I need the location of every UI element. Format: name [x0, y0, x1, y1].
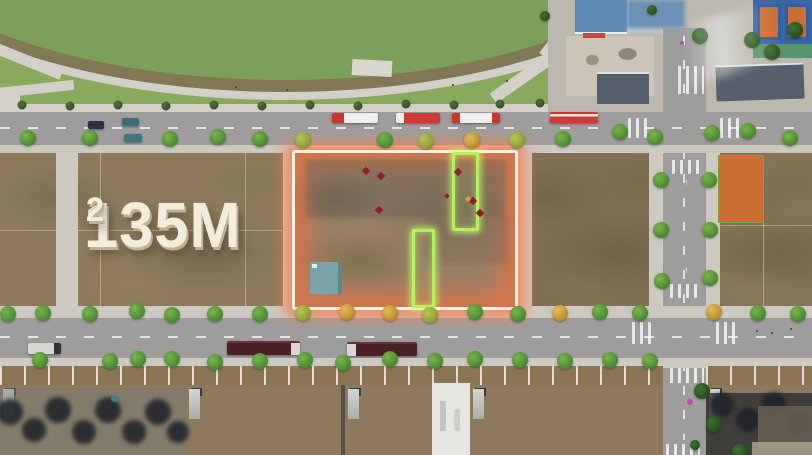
white-corner-building — [432, 383, 470, 455]
tree-icon — [592, 304, 608, 320]
tree-icon — [647, 5, 657, 15]
tree-icon — [297, 352, 313, 368]
shrub-icon — [66, 102, 75, 111]
road-arrow: ↑ — [684, 178, 689, 187]
map-pin-icon — [680, 41, 684, 45]
slate-roof-building — [597, 72, 649, 104]
tree-icon — [512, 352, 528, 368]
tree-icon — [252, 131, 268, 147]
truck — [28, 343, 61, 354]
tree-icon — [252, 306, 268, 322]
tree-icon — [744, 32, 760, 48]
aerial-photo: ↑ ↑ 135M2 — [0, 0, 812, 455]
tree-icon — [382, 305, 398, 321]
clay-lot — [718, 155, 764, 223]
pedestrian-dot — [756, 330, 758, 332]
crosswalk — [678, 66, 704, 94]
tree-icon — [422, 307, 438, 323]
lane-marking — [0, 127, 812, 129]
crosswalk — [670, 368, 704, 383]
tree-icon — [540, 11, 550, 21]
area-label: 135M2 — [84, 188, 105, 262]
tree-icon — [732, 444, 748, 455]
tree-icon — [0, 306, 16, 322]
shrub-icon — [536, 99, 545, 108]
tree-icon — [129, 303, 145, 319]
bus — [332, 113, 378, 123]
tree-icon — [335, 355, 351, 371]
shrub-icon — [402, 100, 411, 109]
tree-icon — [557, 353, 573, 369]
tree-icon — [647, 129, 663, 145]
shrub-icon — [306, 101, 315, 110]
tree-icon — [207, 306, 223, 322]
blue-roof-shed — [310, 262, 342, 294]
tree-icon — [252, 353, 268, 369]
tree-icon — [702, 270, 718, 286]
debris-marker — [583, 33, 605, 38]
blue-roof-building — [627, 0, 685, 31]
tree-icon — [295, 305, 311, 321]
tree-icon — [602, 352, 618, 368]
tree-icon — [467, 304, 483, 320]
highlight-subplot — [412, 229, 435, 308]
park — [0, 0, 548, 112]
crosswalk — [672, 160, 704, 174]
tree-icon — [210, 129, 226, 145]
shrub-icon — [210, 101, 219, 110]
tree-icon — [418, 133, 434, 149]
tree-icon — [162, 131, 178, 147]
tree-icon — [20, 130, 36, 146]
pedestrian-dot — [235, 86, 237, 88]
townhouse-block — [470, 385, 663, 455]
park-sidewalk — [0, 104, 548, 112]
tree-icon — [427, 353, 443, 369]
front-gardens — [706, 366, 812, 385]
slate-roof-building — [715, 62, 804, 101]
crosswalk — [720, 118, 740, 138]
area-exponent: 2 — [86, 191, 105, 229]
sidewalk — [516, 145, 532, 318]
tree-icon — [35, 305, 51, 321]
facade-detail — [454, 409, 460, 431]
tree-icon — [552, 305, 568, 321]
tree-icon — [706, 416, 722, 432]
townhouse-block — [186, 385, 341, 455]
shrub-icon — [354, 102, 363, 111]
tree-icon — [790, 306, 806, 322]
tree-icon — [382, 351, 398, 367]
shrub-icon — [450, 101, 459, 110]
tree-icon — [464, 132, 480, 148]
tree-icon — [377, 132, 393, 148]
crosswalk — [716, 322, 738, 344]
tree-icon — [612, 124, 628, 140]
pedestrian-dot — [790, 328, 792, 330]
tree-icon — [510, 306, 526, 322]
tree-icon — [207, 354, 223, 370]
bus — [452, 113, 500, 123]
tree-icon — [654, 273, 670, 289]
tree-icon — [740, 123, 756, 139]
teal-roof-dot — [111, 396, 119, 402]
pedestrian-dot — [452, 84, 454, 86]
plot-marker-icon — [466, 197, 471, 202]
tree-icon — [32, 352, 48, 368]
townhouse-block — [345, 385, 432, 455]
tree-icon — [694, 383, 710, 399]
semi-truck — [347, 342, 417, 356]
road-arrow: ↑ — [684, 266, 689, 275]
tree-icon — [782, 130, 798, 146]
shrub-icon — [162, 102, 171, 111]
tree-icon — [787, 22, 803, 38]
facade-detail — [440, 401, 446, 431]
bus — [396, 113, 440, 123]
crosswalk — [632, 322, 654, 344]
tree-icon — [706, 304, 722, 320]
lot-boundary — [714, 225, 812, 226]
car — [88, 121, 104, 129]
tree-icon — [701, 172, 717, 188]
tree-icon — [690, 440, 700, 450]
car — [122, 118, 139, 126]
tree-icon — [102, 353, 118, 369]
tree-icon — [130, 351, 146, 367]
vacant-lot-center-right — [518, 150, 663, 308]
shrub-icon — [18, 101, 27, 110]
tree-icon — [555, 131, 571, 147]
tree-icon — [653, 222, 669, 238]
crosswalk — [670, 284, 702, 298]
tree-icon — [642, 353, 658, 369]
tree-icon — [509, 132, 525, 148]
sport-courts — [753, 0, 812, 58]
tree-icon — [704, 125, 720, 141]
pedestrian-dot — [771, 332, 773, 334]
tree-icon — [164, 351, 180, 367]
tree-icon — [632, 305, 648, 321]
highlight-subplot — [452, 152, 479, 231]
tree-icon — [750, 305, 766, 321]
shrub-icon — [258, 102, 267, 111]
basketball-court — [757, 4, 781, 40]
pedestrian-dot — [506, 80, 508, 82]
tree-icon — [82, 306, 98, 322]
court-apron — [753, 44, 812, 58]
tree-icon — [764, 44, 780, 60]
blue-roof-building — [575, 0, 627, 34]
lake-pier — [352, 59, 393, 77]
map-pin-icon — [687, 399, 693, 405]
tree-icon — [295, 132, 311, 148]
car — [124, 134, 142, 142]
shrub-icon — [114, 101, 123, 110]
shrub-icon — [496, 100, 505, 109]
tree-icon — [653, 172, 669, 188]
tree-icon — [164, 307, 180, 323]
tree-icon — [339, 304, 355, 320]
tree-icon — [467, 351, 483, 367]
bus — [550, 112, 598, 123]
area-value: 135M — [84, 188, 242, 262]
pedestrian-dot — [286, 89, 288, 91]
tree-icon — [702, 222, 718, 238]
blurred-ground — [752, 442, 812, 455]
tree-icon — [82, 130, 98, 146]
tree-icon — [692, 28, 708, 44]
lane-marking — [0, 336, 812, 338]
